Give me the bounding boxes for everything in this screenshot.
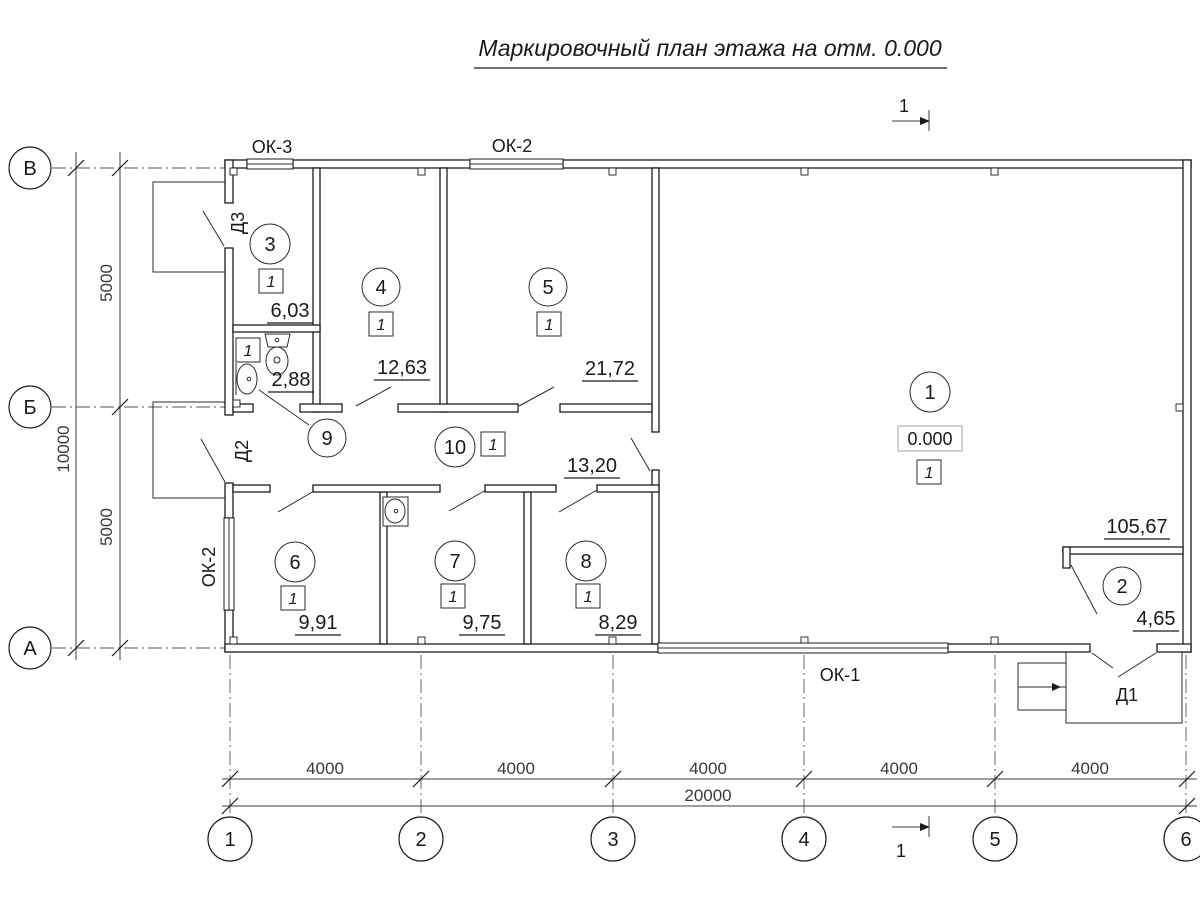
floor-type: 1 xyxy=(377,317,386,334)
dim-left-span-bottom: 5000 xyxy=(97,508,116,546)
drawing-title: Маркировочный план этажа на отм. 0.000 xyxy=(478,35,941,61)
wall-segment xyxy=(233,325,320,332)
section-number: 1 xyxy=(899,96,909,116)
room-label-8: 8 1 8,29 xyxy=(566,541,641,635)
wall-segment xyxy=(300,404,342,412)
room-area: 6,03 xyxy=(271,300,310,322)
room-number: 3 xyxy=(264,234,275,256)
door-leaf-room5 xyxy=(519,387,554,406)
grid-tick xyxy=(801,168,808,175)
dim-left-span-top: 5000 xyxy=(97,264,116,302)
floor-type: 1 xyxy=(449,589,458,606)
floor-type: 1 xyxy=(545,317,554,334)
wall-segment xyxy=(652,470,659,644)
wall-segment xyxy=(563,160,1191,168)
wall-segment xyxy=(398,404,518,412)
door-leaf-room7 xyxy=(449,490,486,511)
axis-col-label: 2 xyxy=(415,829,426,851)
grid-tick xyxy=(230,637,237,644)
wall-segment xyxy=(560,404,652,412)
room-number: 2 xyxy=(1116,576,1127,598)
axis-col-label: 6 xyxy=(1180,829,1191,851)
axis-row-label: Б xyxy=(23,397,36,419)
room-label-4: 4 1 12,63 xyxy=(362,268,430,380)
wall-segment xyxy=(313,168,320,412)
floor-type: 1 xyxy=(489,437,498,454)
walls xyxy=(225,160,1191,652)
porch-top-left xyxy=(153,182,225,272)
toilet-drain-dot xyxy=(274,357,280,363)
room-area: 9,75 xyxy=(463,612,502,634)
window-label-ok1: ОК-1 xyxy=(820,665,861,685)
door-label-d3: Д3 xyxy=(228,212,248,234)
section-mark-bottom: 1 xyxy=(892,816,930,861)
floor-type: 1 xyxy=(267,274,276,291)
floor-type: 1 xyxy=(244,343,253,360)
window-label-ok2-top: ОК-2 xyxy=(492,136,533,156)
grid-tick xyxy=(1176,404,1183,411)
toilet-tank-dot xyxy=(275,338,279,342)
room-label-1: 1 0.000 1 105,67 xyxy=(898,372,1170,539)
window-label-ok3: ОК-3 xyxy=(252,137,293,157)
door-leaf-corridor xyxy=(631,438,650,471)
room-number: 7 xyxy=(449,551,460,573)
wall-segment xyxy=(1063,547,1070,568)
room-number: 8 xyxy=(580,551,591,573)
door-leaf-d3 xyxy=(203,211,224,246)
floor-plan-canvas: Маркировочный план этажа на отм. 0.000 xyxy=(0,0,1200,900)
floor-type: 1 xyxy=(584,589,593,606)
grid-tick xyxy=(609,168,616,175)
porch-mid-left xyxy=(153,402,225,498)
entry-arrow-icon xyxy=(1052,683,1061,691)
sink-drain-dot xyxy=(247,377,251,381)
grid-tick xyxy=(609,637,616,644)
grid-tick xyxy=(991,168,998,175)
room-label-3: 3 1 6,03 xyxy=(250,224,313,323)
grid-tick xyxy=(233,400,240,407)
wall-segment xyxy=(225,248,233,415)
wall-segment xyxy=(1157,644,1191,652)
room-area: 9,91 xyxy=(299,612,338,634)
room-label-10: 10 1 13,20 xyxy=(435,427,620,478)
grid-tick xyxy=(991,637,998,644)
wall-segment xyxy=(1183,160,1191,652)
door-label-d2: Д2 xyxy=(232,440,252,462)
room-labels: 1 0.000 1 105,67 2 4,65 3 1 6,03 4 xyxy=(236,224,1179,635)
wall-segment xyxy=(313,485,440,492)
wall-segment xyxy=(225,160,233,203)
door-leaf-room6 xyxy=(278,491,314,512)
floor-type: 1 xyxy=(289,591,298,608)
wall-segment xyxy=(652,168,659,432)
room-number: 5 xyxy=(542,277,553,299)
wall-segment xyxy=(225,644,658,652)
elevation-value: 0.000 xyxy=(907,429,952,449)
door-leaf-d1-right xyxy=(1118,653,1156,677)
dim-bottom-span-2: 4000 xyxy=(497,759,535,778)
dim-bottom-total: 20000 xyxy=(684,786,731,805)
grid-tick xyxy=(230,168,237,175)
dim-bottom-span-3: 4000 xyxy=(689,759,727,778)
door-label-d1: Д1 xyxy=(1116,685,1138,705)
room-label-5: 5 1 21,72 xyxy=(529,268,638,381)
room-area: 12,63 xyxy=(377,357,427,379)
dim-left-total: 10000 xyxy=(54,425,73,472)
axis-row-label: А xyxy=(23,638,37,660)
wall-segment xyxy=(485,485,556,492)
dim-bottom-span-1: 4000 xyxy=(306,759,344,778)
door-leaf-room2 xyxy=(1071,565,1097,614)
room-area: 13,20 xyxy=(567,455,617,477)
wall-segment xyxy=(440,168,447,412)
axis-col-label: 3 xyxy=(607,829,618,851)
room-area: 105,67 xyxy=(1106,516,1167,538)
dim-bottom-span-4: 4000 xyxy=(880,759,918,778)
wall-segment xyxy=(225,483,233,518)
door-leaf-room8 xyxy=(559,490,597,512)
floor-type: 1 xyxy=(925,465,934,482)
wall-segment xyxy=(948,644,1090,652)
door-leaf-d2 xyxy=(201,439,225,482)
window-label-ok2-left: ОК-2 xyxy=(199,547,219,588)
sink-drain-dot xyxy=(394,509,398,513)
wall-segment xyxy=(293,160,470,168)
section-number: 1 xyxy=(896,841,906,861)
title-block: Маркировочный план этажа на отм. 0.000 xyxy=(474,35,947,68)
grid-tick xyxy=(418,168,425,175)
grid-tick xyxy=(418,637,425,644)
axis-col-label: 1 xyxy=(224,829,235,851)
room-label-2: 2 4,65 xyxy=(1103,567,1179,631)
opening-labels: ОК-3 ОК-2 ОК-2 ОК-1 Д3 Д2 Д1 xyxy=(199,136,1138,705)
room-number: 9 xyxy=(321,428,332,450)
wall-segment xyxy=(597,485,659,492)
axis-col-label: 4 xyxy=(798,829,809,851)
room-number: 1 xyxy=(924,382,935,404)
dim-bottom-span-5: 4000 xyxy=(1071,759,1109,778)
room-number: 4 xyxy=(375,277,386,299)
drawing-sheet: Маркировочный план этажа на отм. 0.000 xyxy=(0,0,1200,900)
room-label-7: 7 1 9,75 xyxy=(435,541,505,635)
room-label-9: 1 2,88 9 xyxy=(236,338,346,457)
door-leaf-room4 xyxy=(356,387,391,406)
room-number: 6 xyxy=(289,552,300,574)
axis-col-label: 5 xyxy=(989,829,1000,851)
wall-segment xyxy=(524,492,531,644)
wall-segment xyxy=(233,485,270,492)
door-leaf-d1-left xyxy=(1092,653,1113,668)
wall-segment xyxy=(1063,547,1183,554)
axis-row-label: В xyxy=(23,158,36,180)
room-area: 4,65 xyxy=(1137,608,1176,630)
section-mark-top: 1 xyxy=(892,96,930,131)
room-label-6: 6 1 9,91 xyxy=(275,542,341,635)
porches xyxy=(153,182,1182,723)
room-area: 21,72 xyxy=(585,358,635,380)
axis-bubbles: В Б А 1 2 3 4 5 6 xyxy=(9,147,1200,861)
room-number: 10 xyxy=(444,437,466,459)
room-area: 8,29 xyxy=(599,612,638,634)
room-area: 2,88 xyxy=(272,369,311,391)
